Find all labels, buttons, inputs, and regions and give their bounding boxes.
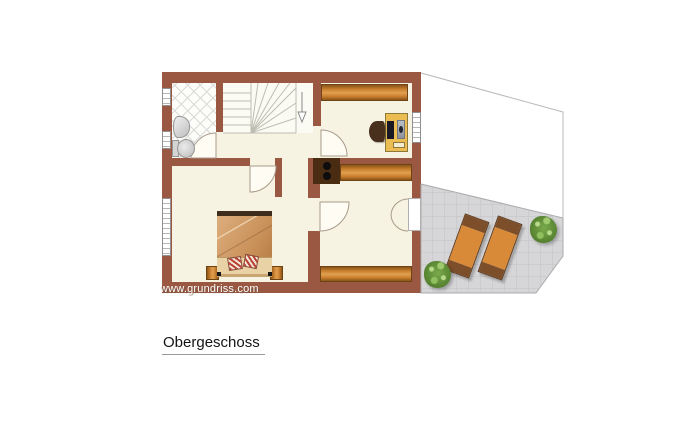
roof-outline xyxy=(421,73,563,218)
monitor xyxy=(387,121,394,139)
page-title: Obergeschoss xyxy=(162,334,265,355)
toilet xyxy=(177,139,195,158)
wall-top xyxy=(162,72,421,83)
plant-icon xyxy=(530,216,557,243)
bed-corner xyxy=(268,272,272,276)
chimney-block xyxy=(313,158,340,184)
wall-middle-left xyxy=(162,158,250,166)
chimney-flue-icon xyxy=(323,172,331,180)
wall-stairs-office xyxy=(313,83,321,126)
bed-corner xyxy=(217,272,221,276)
keyboard xyxy=(393,142,405,148)
pc-tower xyxy=(397,120,405,139)
wall-right xyxy=(412,72,421,293)
floorplan-canvas: www.grundriss.com Obergeschoss xyxy=(0,0,700,435)
window-bathroom-1 xyxy=(162,88,171,106)
knee-wall-office xyxy=(321,84,408,101)
office-chair xyxy=(369,121,385,142)
window-bedroom xyxy=(162,198,171,256)
watermark: www.grundriss.com xyxy=(160,283,259,295)
double-bed xyxy=(217,211,272,277)
staircase-area xyxy=(223,83,313,133)
terrace-door-threshold xyxy=(408,198,421,231)
pillow xyxy=(243,254,259,269)
chimney-flue-icon xyxy=(323,162,331,170)
bed-blanket xyxy=(217,216,272,257)
wall-bath-stairs xyxy=(216,83,223,132)
plant-icon xyxy=(424,261,451,288)
shelf-band xyxy=(340,164,412,181)
window-office xyxy=(412,112,421,143)
pillow xyxy=(227,256,243,271)
wall-room-left-lower xyxy=(308,231,320,282)
window-bathroom-2 xyxy=(162,131,171,149)
pc-detail xyxy=(399,126,403,133)
knee-wall-bottom-room xyxy=(320,266,412,282)
bed-footboard xyxy=(217,274,272,277)
wall-corridor-stub xyxy=(275,158,282,197)
